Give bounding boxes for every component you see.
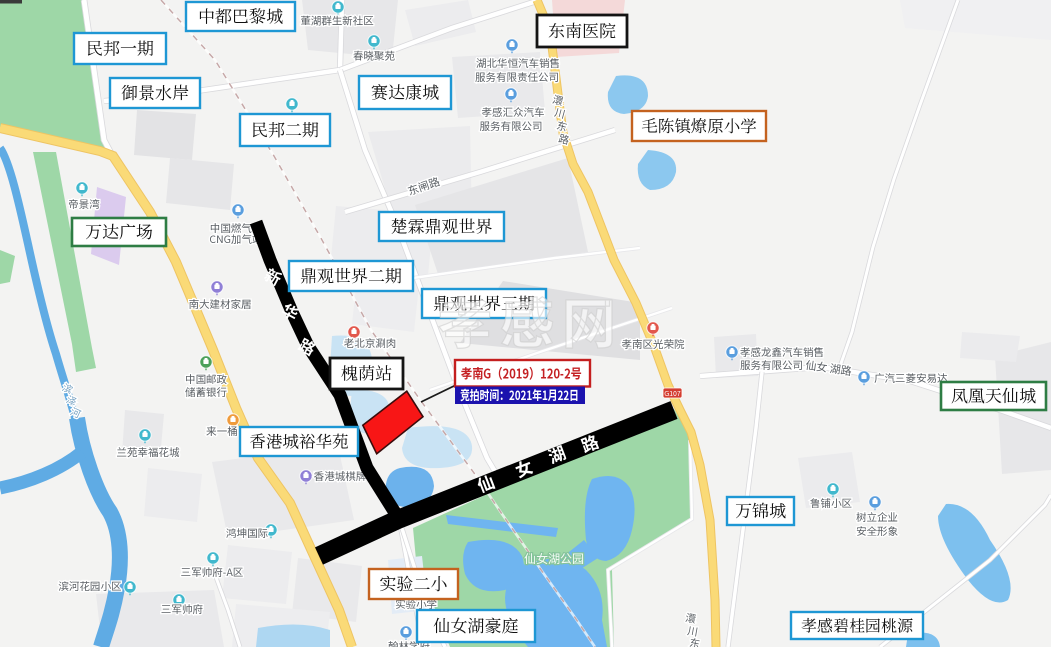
svg-text:服务有限公司: 服务有限公司 <box>480 119 543 134</box>
svg-text:御景水岸: 御景水岸 <box>121 79 189 104</box>
svg-text:董湖群生新社区: 董湖群生新社区 <box>300 14 374 29</box>
svg-text:湖北华恒汽车销售: 湖北华恒汽车销售 <box>476 56 560 71</box>
svg-text:鼎观世界二期: 鼎观世界二期 <box>300 262 402 287</box>
svg-text:毛陈镇燎原小学: 毛陈镇燎原小学 <box>641 113 757 137</box>
svg-text:香港城棋牌: 香港城棋牌 <box>314 469 367 484</box>
svg-text:孝感网: 孝感网 <box>438 280 624 359</box>
svg-text:滨河花园小区: 滨河花园小区 <box>59 579 122 594</box>
svg-text:仙女湖豪庭: 仙女湖豪庭 <box>434 612 519 637</box>
svg-text:三军帅府-A区: 三军帅府-A区 <box>181 565 244 580</box>
svg-text:中都巴黎城: 中都巴黎城 <box>198 3 283 28</box>
svg-text:服务有限公司: 服务有限公司 <box>740 358 803 373</box>
svg-text:竞拍时间：2021年1月22日: 竞拍时间：2021年1月22日 <box>460 385 579 404</box>
svg-text:孝感碧桂园桃源: 孝感碧桂园桃源 <box>801 613 913 636</box>
svg-text:楚霖鼎观世界: 楚霖鼎观世界 <box>391 213 493 238</box>
svg-text:孝南G（2019）120-2号: 孝南G（2019）120-2号 <box>461 363 582 383</box>
svg-text:万达广场: 万达广场 <box>85 218 153 243</box>
svg-text:万锦城: 万锦城 <box>735 497 786 522</box>
svg-text:东南医院: 东南医院 <box>548 17 616 42</box>
svg-text:鲁铺小区: 鲁铺小区 <box>810 496 852 511</box>
svg-text:南大建材家居: 南大建材家居 <box>189 297 252 312</box>
svg-text:春晓聚苑: 春晓聚苑 <box>353 49 395 64</box>
svg-text:服务有限责任公司: 服务有限责任公司 <box>475 70 559 85</box>
svg-text:三军帅府: 三军帅府 <box>161 602 203 617</box>
svg-text:广汽三菱安易达: 广汽三菱安易达 <box>874 371 948 386</box>
svg-text:东: 东 <box>688 635 701 647</box>
svg-text:孝感汇众汽车: 孝感汇众汽车 <box>482 105 545 120</box>
svg-text:来一桶: 来一桶 <box>206 424 238 439</box>
svg-text:民邦一期: 民邦一期 <box>86 35 154 60</box>
svg-text:储蓄银行: 储蓄银行 <box>185 385 227 400</box>
svg-text:槐荫站: 槐荫站 <box>341 360 392 385</box>
svg-text:孝南区光荣院: 孝南区光荣院 <box>622 337 685 352</box>
svg-text:赛达康城: 赛达康城 <box>371 79 439 104</box>
svg-text:凤凰天仙城: 凤凰天仙城 <box>951 382 1036 407</box>
svg-text:民邦二期: 民邦二期 <box>251 116 319 141</box>
svg-text:实验二小: 实验二小 <box>380 570 448 595</box>
svg-text:兰苑幸福花城: 兰苑幸福花城 <box>117 445 180 460</box>
svg-text:香港城裕华苑: 香港城裕华苑 <box>250 428 349 452</box>
svg-text:G107: G107 <box>664 389 681 399</box>
svg-text:鸿坤国际: 鸿坤国际 <box>226 526 268 541</box>
svg-text:安全形象: 安全形象 <box>856 524 898 539</box>
svg-text:树立企业: 树立企业 <box>856 510 898 525</box>
svg-text:帝景湾: 帝景湾 <box>68 197 100 212</box>
svg-text:老北京涮肉: 老北京涮肉 <box>344 336 397 351</box>
svg-text:仙女湖公园: 仙女湖公园 <box>524 550 584 567</box>
